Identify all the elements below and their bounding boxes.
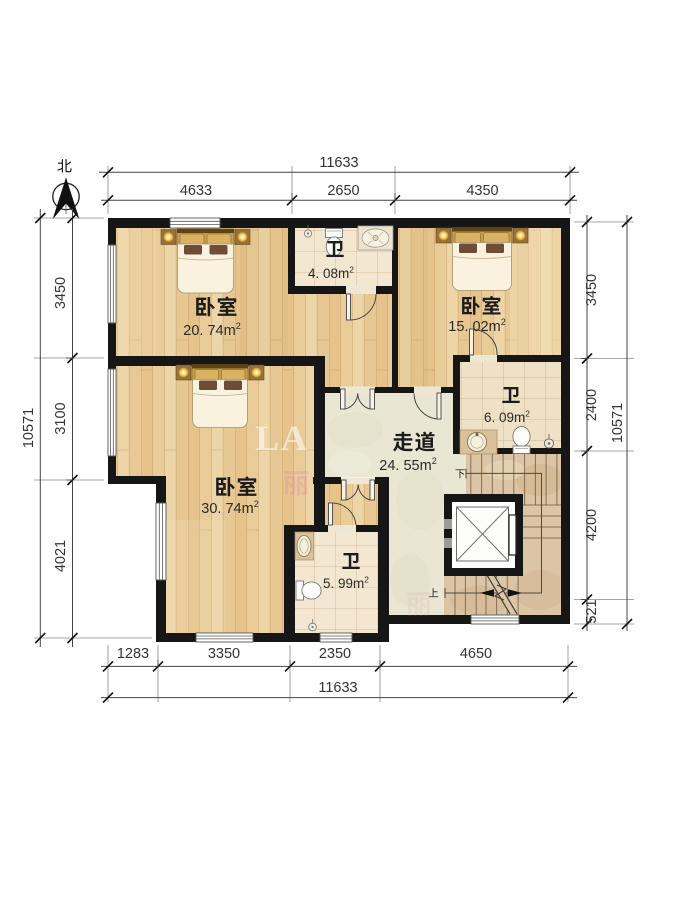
- svg-text:30. 74m2: 30. 74m2: [201, 499, 258, 517]
- svg-text:24. 55m2: 24. 55m2: [379, 456, 436, 474]
- svg-text:LA: LA: [255, 418, 309, 458]
- svg-text:521: 521: [584, 599, 600, 623]
- svg-text:10571: 10571: [21, 408, 37, 448]
- svg-text:2350: 2350: [319, 646, 351, 662]
- svg-text:5. 99m2: 5. 99m2: [323, 575, 369, 591]
- svg-text:4. 08m2: 4. 08m2: [308, 265, 354, 281]
- svg-text:6. 09m2: 6. 09m2: [484, 409, 530, 425]
- svg-text:3100: 3100: [53, 402, 69, 434]
- svg-text:11633: 11633: [318, 680, 357, 696]
- svg-text:4350: 4350: [466, 183, 498, 199]
- svg-text:3450: 3450: [584, 274, 600, 306]
- svg-text:3350: 3350: [208, 646, 240, 662]
- svg-text:2400: 2400: [584, 389, 600, 421]
- svg-text:10571: 10571: [610, 403, 626, 443]
- svg-text:4021: 4021: [53, 540, 69, 572]
- svg-text:1283: 1283: [117, 646, 149, 662]
- svg-text:4633: 4633: [180, 183, 212, 199]
- svg-text:4200: 4200: [584, 509, 600, 541]
- svg-text:3450: 3450: [53, 277, 69, 309]
- svg-text:11633: 11633: [319, 155, 358, 171]
- svg-text:2650: 2650: [327, 183, 359, 199]
- svg-text:15. 02m2: 15. 02m2: [448, 317, 505, 335]
- svg-text:20. 74m2: 20. 74m2: [183, 321, 240, 339]
- svg-text:4650: 4650: [460, 646, 492, 662]
